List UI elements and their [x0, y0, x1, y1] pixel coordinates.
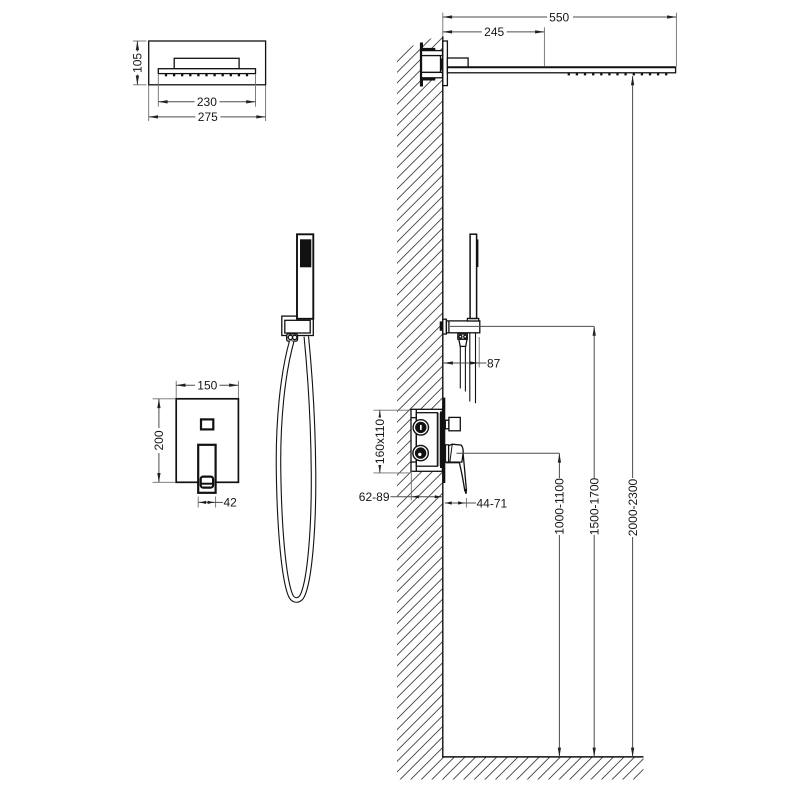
- svg-text:245: 245: [484, 25, 504, 39]
- svg-text:275: 275: [198, 110, 218, 124]
- svg-text:550: 550: [549, 10, 569, 24]
- svg-text:105: 105: [131, 53, 145, 73]
- svg-text:230: 230: [197, 95, 217, 109]
- svg-text:150: 150: [197, 379, 217, 393]
- svg-text:44-71: 44-71: [477, 496, 508, 510]
- svg-text:42: 42: [224, 495, 238, 509]
- svg-text:1500-1700: 1500-1700: [588, 477, 602, 535]
- svg-text:1000-1100: 1000-1100: [553, 478, 567, 535]
- svg-text:2000-2300: 2000-2300: [626, 478, 640, 536]
- svg-text:160x110: 160x110: [373, 419, 387, 464]
- svg-text:62-89: 62-89: [359, 490, 390, 504]
- svg-text:200: 200: [152, 430, 166, 450]
- svg-text:87: 87: [487, 356, 501, 370]
